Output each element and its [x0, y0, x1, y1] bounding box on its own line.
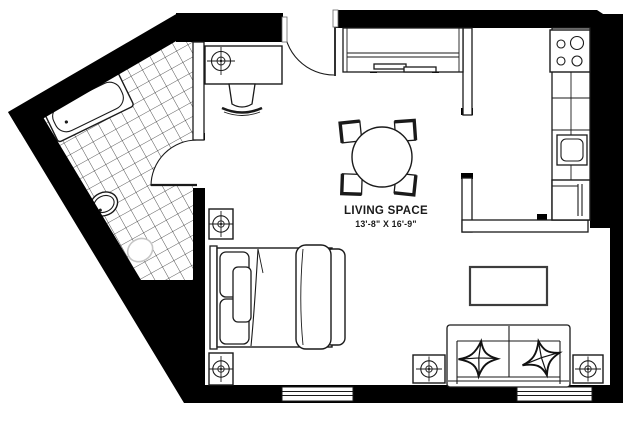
entry-door [282, 10, 338, 76]
kitchen [550, 28, 590, 220]
column-symbol [209, 353, 234, 385]
closet [343, 28, 463, 72]
stove [550, 30, 590, 72]
headboard [210, 246, 217, 349]
desk [205, 46, 282, 84]
dining-table [352, 127, 412, 187]
room-label: LIVING SPACE 13'-8" X 16'-9" [344, 205, 428, 229]
dining-set [331, 111, 424, 204]
window-bottom-left [282, 387, 353, 401]
column-symbol [209, 209, 234, 239]
sliding-door-panel [374, 64, 406, 69]
coffee-table [470, 267, 547, 305]
desk-chair [222, 84, 262, 116]
bed [210, 245, 345, 349]
door-swing-arc [284, 25, 334, 75]
floor-plan-page: LIVING SPACE 13'-8" X 16'-9" [0, 0, 640, 425]
room-dimensions: 13'-8" X 16'-9" [355, 219, 417, 229]
window-bottom-right [517, 387, 592, 401]
door-jamb-left [282, 17, 287, 42]
wall-top [335, 10, 623, 28]
body-pillow [233, 267, 251, 322]
column-symbol [413, 355, 445, 383]
floor-plan-drawing: LIVING SPACE 13'-8" X 16'-9" [0, 0, 640, 425]
wall-right-kitchen [590, 14, 623, 228]
wall-bathroom-above-door [193, 42, 204, 140]
refrigerator [552, 180, 590, 220]
wall-closet-side [463, 28, 472, 115]
wall-top-left [176, 13, 283, 42]
door-jamb-right [333, 10, 338, 27]
wall-bathroom-below-door [193, 188, 205, 282]
sofa [447, 325, 570, 387]
sliding-door-panel [404, 67, 436, 72]
room-title: LIVING SPACE [344, 205, 428, 217]
wall-right-living [610, 228, 623, 403]
duvet-roll [296, 245, 331, 349]
column-symbol [573, 355, 603, 383]
kitchen-sink [557, 135, 587, 165]
